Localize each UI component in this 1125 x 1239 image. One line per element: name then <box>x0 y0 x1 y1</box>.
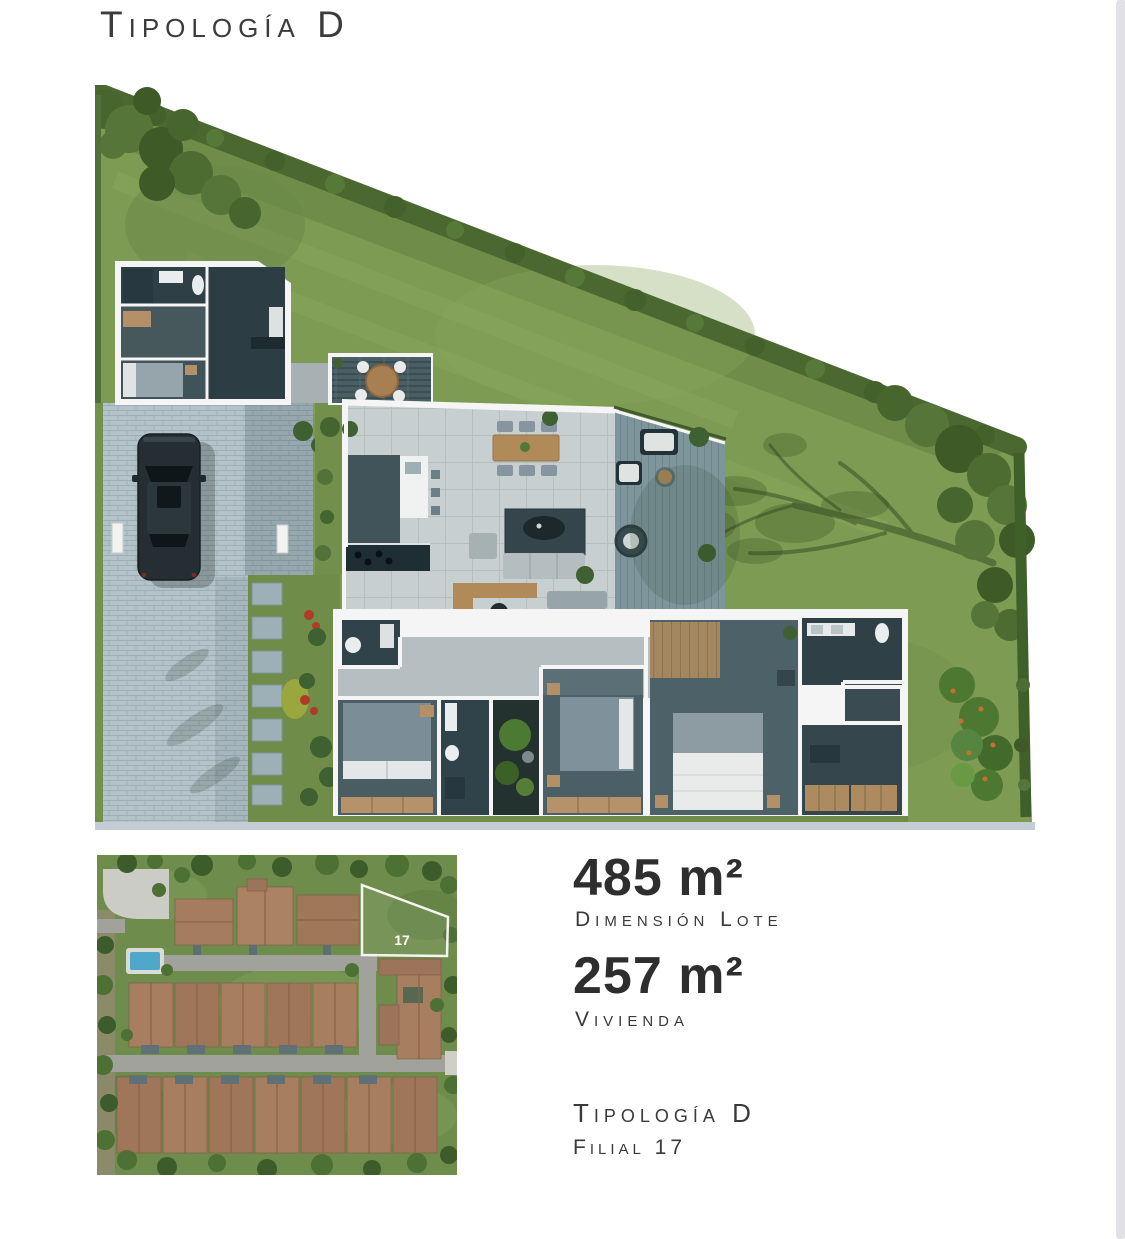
typology-name: Tipología D <box>573 1098 756 1129</box>
house-size-label: Vivienda <box>575 1008 689 1032</box>
house-size-value: 257 m² <box>573 946 744 1006</box>
car <box>132 434 215 588</box>
dining-pergola <box>328 353 433 405</box>
site-map-render: 17 <box>97 855 457 1175</box>
brochure-page: Tipología D <box>0 0 1125 1239</box>
street-edge <box>95 822 1035 830</box>
scrollbar-track[interactable] <box>1114 0 1125 1239</box>
houses-row-bottom <box>117 1075 437 1153</box>
front-lawn-strip <box>330 816 908 822</box>
bedroom-wing <box>333 609 908 821</box>
aerial-floor-plan-render <box>95 85 1035 830</box>
lot-17-label: 17 <box>394 932 410 948</box>
filial-number: Filial 17 <box>573 1136 686 1160</box>
outdoor-deck <box>614 407 740 641</box>
lot-size-value: 485 m² <box>573 848 744 908</box>
pool <box>126 948 164 974</box>
houses-row-middle <box>129 983 357 1054</box>
annex-block <box>115 261 291 405</box>
west-garden-bed <box>315 403 346 575</box>
lot-size-label: Dimensión Lote <box>575 908 783 932</box>
page-title: Tipología D <box>100 4 350 46</box>
